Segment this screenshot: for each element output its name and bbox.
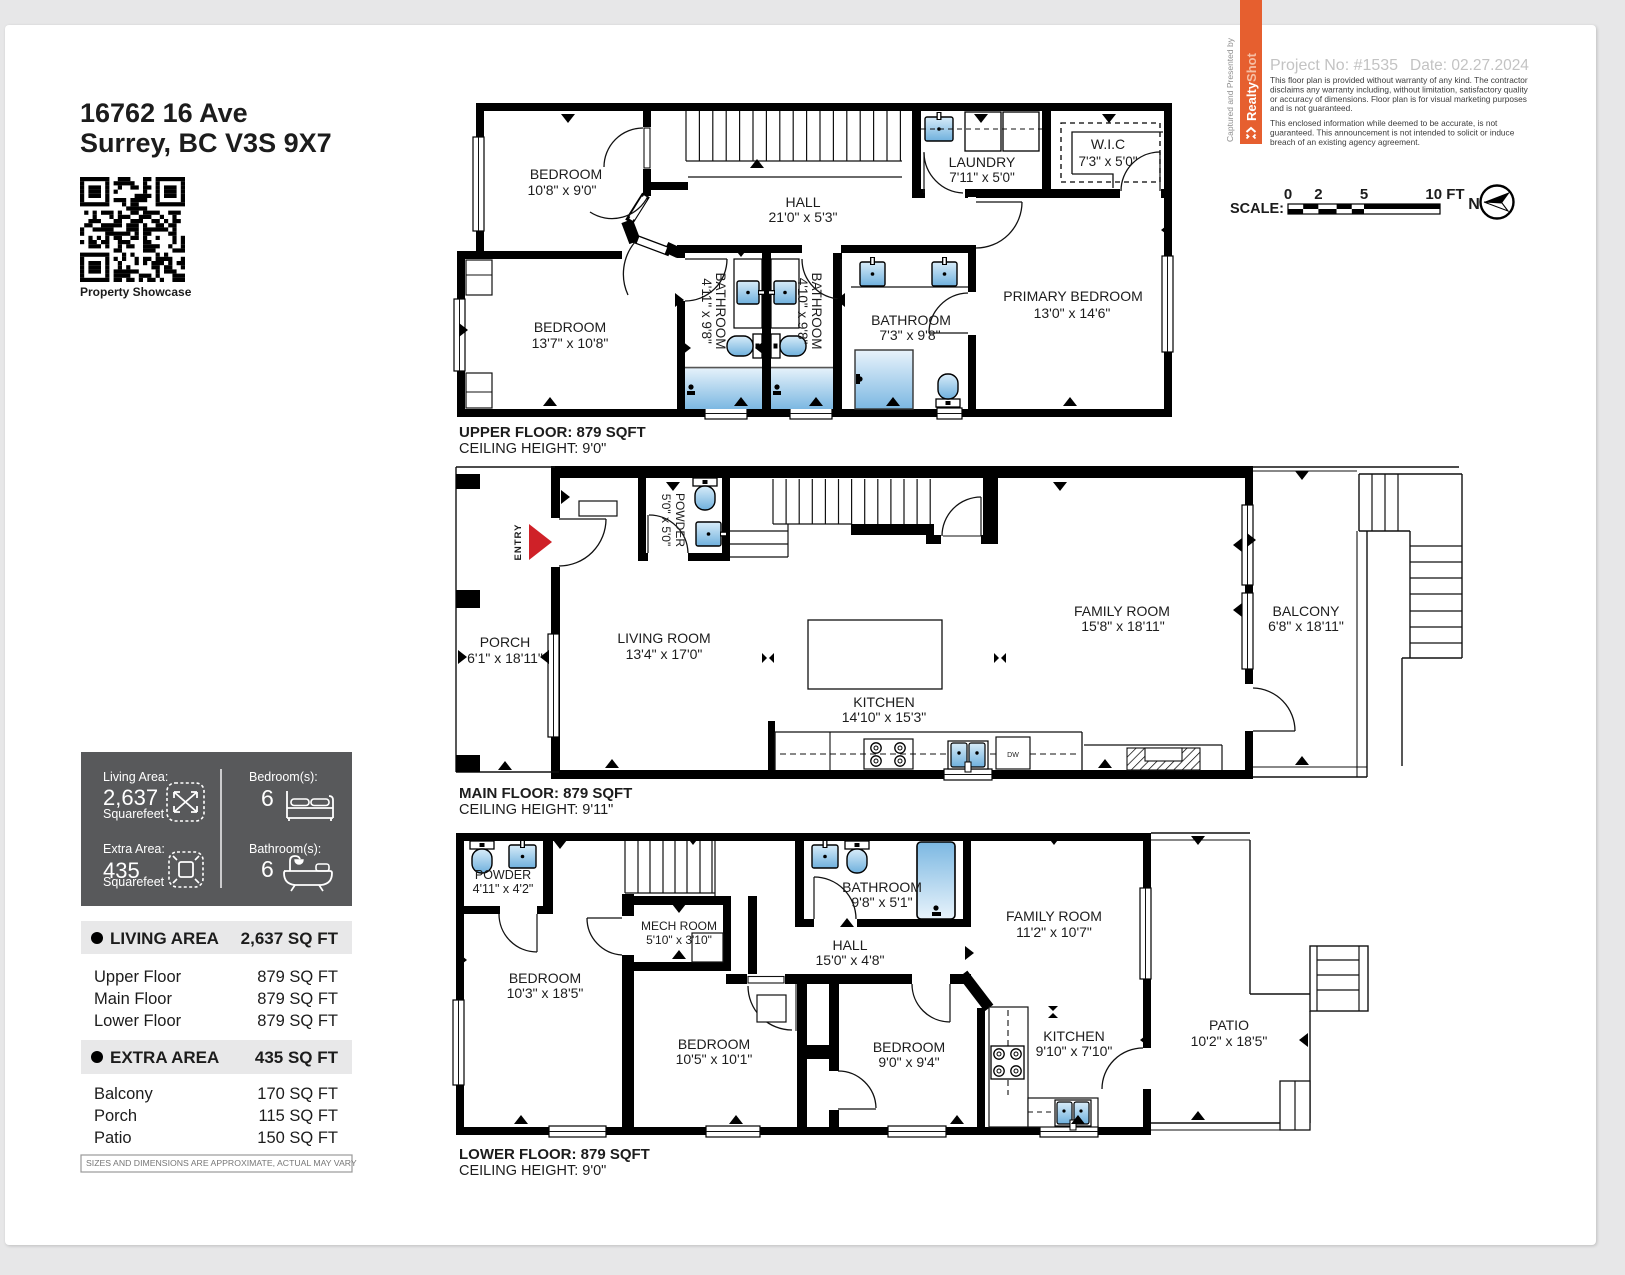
svg-text:breach of an existing agency a: breach of an existing agency agreement. <box>1270 137 1420 147</box>
svg-text:BATHROOM4'11" x 9'8": BATHROOM4'11" x 9'8" <box>699 273 728 350</box>
svg-text:BALCONY: BALCONY <box>1273 603 1341 619</box>
svg-text:7'11" x 5'0": 7'11" x 5'0" <box>949 170 1015 185</box>
svg-text:EXTRA AREA: EXTRA AREA <box>110 1048 219 1067</box>
svg-text:13'4" x 17'0": 13'4" x 17'0" <box>626 646 703 662</box>
svg-text:CEILING HEIGHT: 9'0": CEILING HEIGHT: 9'0" <box>459 1163 606 1179</box>
svg-text:Date: 02.27.2024: Date: 02.27.2024 <box>1410 57 1529 74</box>
svg-text:FAMILY ROOM: FAMILY ROOM <box>1074 603 1170 619</box>
svg-text:9'8" x 5'1": 9'8" x 5'1" <box>851 894 912 910</box>
svg-text:Balcony: Balcony <box>94 1085 153 1103</box>
svg-text:2,637 SQ FT: 2,637 SQ FT <box>241 929 339 948</box>
svg-text:BATHROOM: BATHROOM <box>842 879 922 895</box>
svg-text:6'1" x 18'11": 6'1" x 18'11" <box>467 650 543 666</box>
svg-text:Main Floor: Main Floor <box>94 990 172 1008</box>
svg-text:14'10" x 15'3": 14'10" x 15'3" <box>842 709 927 725</box>
svg-text:170 SQ FT: 170 SQ FT <box>257 1085 338 1103</box>
svg-text:Squarefeet: Squarefeet <box>103 807 165 821</box>
svg-text:RealtyShot: RealtyShot <box>1244 52 1259 121</box>
svg-text:BEDROOM: BEDROOM <box>534 319 606 335</box>
svg-text:2: 2 <box>1314 186 1322 203</box>
svg-text:Squarefeet: Squarefeet <box>103 875 165 889</box>
svg-text:LOWER FLOOR: 879 SQFT: LOWER FLOOR: 879 SQFT <box>459 1146 650 1163</box>
svg-text:DW: DW <box>1007 752 1019 759</box>
svg-text:Bedroom(s):: Bedroom(s): <box>249 770 318 784</box>
svg-text:6'8" x 18'11": 6'8" x 18'11" <box>1268 618 1344 634</box>
svg-text:9'0" x 9'4": 9'0" x 9'4" <box>878 1054 939 1070</box>
svg-text:and is not guaranteed.: and is not guaranteed. <box>1270 103 1353 113</box>
svg-text:15'0" x 4'8": 15'0" x 4'8" <box>816 952 885 968</box>
svg-text:FAMILY ROOM: FAMILY ROOM <box>1006 908 1102 924</box>
svg-text:11'2" x 10'7": 11'2" x 10'7" <box>1016 924 1092 940</box>
svg-text:LIVING ROOM: LIVING ROOM <box>617 630 710 646</box>
svg-text:5'10" x 3'10": 5'10" x 3'10" <box>646 933 712 947</box>
svg-text:16762 16 Ave: 16762 16 Ave <box>80 98 248 128</box>
svg-text:Captured and Presented by: Captured and Presented by <box>1225 37 1235 142</box>
svg-text:HALL: HALL <box>785 194 820 210</box>
svg-text:SCALE:: SCALE: <box>1230 201 1284 217</box>
svg-text:10'2" x 18'5": 10'2" x 18'5" <box>1191 1033 1268 1049</box>
svg-text:BEDROOM: BEDROOM <box>873 1039 945 1055</box>
svg-text:Project No: #1535: Project No: #1535 <box>1270 57 1398 74</box>
svg-text:PATIO: PATIO <box>1209 1017 1249 1033</box>
svg-text:6: 6 <box>261 856 274 882</box>
svg-text:CEILING HEIGHT: 9'0": CEILING HEIGHT: 9'0" <box>459 441 606 457</box>
svg-text:LAUNDRY: LAUNDRY <box>949 154 1016 170</box>
svg-text:6: 6 <box>261 785 274 811</box>
svg-text:10 FT: 10 FT <box>1425 186 1464 203</box>
svg-text:SIZES AND DIMENSIONS ARE APPRO: SIZES AND DIMENSIONS ARE APPROXIMATE, AC… <box>86 1158 357 1168</box>
svg-text:Patio: Patio <box>94 1129 132 1147</box>
svg-text:LIVING AREA: LIVING AREA <box>110 929 219 948</box>
svg-text:15'8" x 18'11": 15'8" x 18'11" <box>1081 618 1165 634</box>
svg-text:13'7" x 10'8": 13'7" x 10'8" <box>532 335 609 351</box>
svg-text:PRIMARY BEDROOM: PRIMARY BEDROOM <box>1003 288 1143 304</box>
svg-text:Surrey, BC V3S 9X7: Surrey, BC V3S 9X7 <box>80 128 332 158</box>
svg-text:ENTRY: ENTRY <box>513 524 524 561</box>
svg-text:21'0" x 5'3": 21'0" x 5'3" <box>769 209 838 225</box>
svg-text:BEDROOM: BEDROOM <box>530 166 602 182</box>
svg-text:879 SQ FT: 879 SQ FT <box>257 968 338 986</box>
svg-text:UPPER FLOOR: 879 SQFT: UPPER FLOOR: 879 SQFT <box>459 424 646 441</box>
svg-text:Property Showcase: Property Showcase <box>80 285 192 299</box>
svg-text:Bathroom(s):: Bathroom(s): <box>249 842 321 856</box>
svg-text:N: N <box>1468 196 1480 213</box>
svg-text:BEDROOM: BEDROOM <box>509 970 581 986</box>
svg-text:10'5" x 10'1": 10'5" x 10'1" <box>676 1051 753 1067</box>
svg-text:10'3" x 18'5": 10'3" x 18'5" <box>507 985 584 1001</box>
svg-text:MAIN FLOOR: 879 SQFT: MAIN FLOOR: 879 SQFT <box>459 785 632 802</box>
svg-text:435 SQ FT: 435 SQ FT <box>255 1048 339 1067</box>
svg-text:KITCHEN: KITCHEN <box>1043 1028 1104 1044</box>
svg-text:5: 5 <box>1360 186 1368 203</box>
svg-text:W.I.C: W.I.C <box>1091 136 1125 152</box>
svg-text:0: 0 <box>1284 186 1292 203</box>
svg-text:9'10" x 7'10": 9'10" x 7'10" <box>1036 1043 1113 1059</box>
svg-text:879 SQ FT: 879 SQ FT <box>257 990 338 1008</box>
svg-text:BATHROOM4'10" x 9'8": BATHROOM4'10" x 9'8" <box>795 273 824 350</box>
svg-text:BEDROOM: BEDROOM <box>678 1036 750 1052</box>
svg-text:115 SQ FT: 115 SQ FT <box>259 1107 338 1125</box>
svg-text:Porch: Porch <box>94 1107 137 1125</box>
svg-text:PORCH: PORCH <box>480 634 531 650</box>
svg-text:7'3" x 5'0": 7'3" x 5'0" <box>1078 154 1137 169</box>
svg-text:KITCHEN: KITCHEN <box>853 694 914 710</box>
svg-text:CEILING HEIGHT: 9'11": CEILING HEIGHT: 9'11" <box>459 802 613 818</box>
svg-text:MECH ROOM: MECH ROOM <box>641 919 717 933</box>
svg-text:Living Area:: Living Area: <box>103 770 168 784</box>
svg-text:150 SQ FT: 150 SQ FT <box>257 1129 338 1147</box>
svg-text:POWDER5'0" x 5'0": POWDER5'0" x 5'0" <box>659 493 687 547</box>
svg-text:Extra Area:: Extra Area: <box>103 842 165 856</box>
svg-text:POWDER: POWDER <box>475 868 531 882</box>
svg-text:7'3" x 9'8": 7'3" x 9'8" <box>879 327 940 343</box>
svg-text:HALL: HALL <box>832 937 867 953</box>
svg-text:Lower Floor: Lower Floor <box>94 1012 182 1030</box>
svg-text:879 SQ FT: 879 SQ FT <box>257 1012 338 1030</box>
svg-text:10'8" x 9'0": 10'8" x 9'0" <box>528 182 597 198</box>
svg-text:BATHROOM: BATHROOM <box>871 312 951 328</box>
svg-text:4'11" x 4'2": 4'11" x 4'2" <box>473 882 534 896</box>
svg-text:Upper Floor: Upper Floor <box>94 968 182 986</box>
svg-text:13'0" x 14'6": 13'0" x 14'6" <box>1034 305 1111 321</box>
